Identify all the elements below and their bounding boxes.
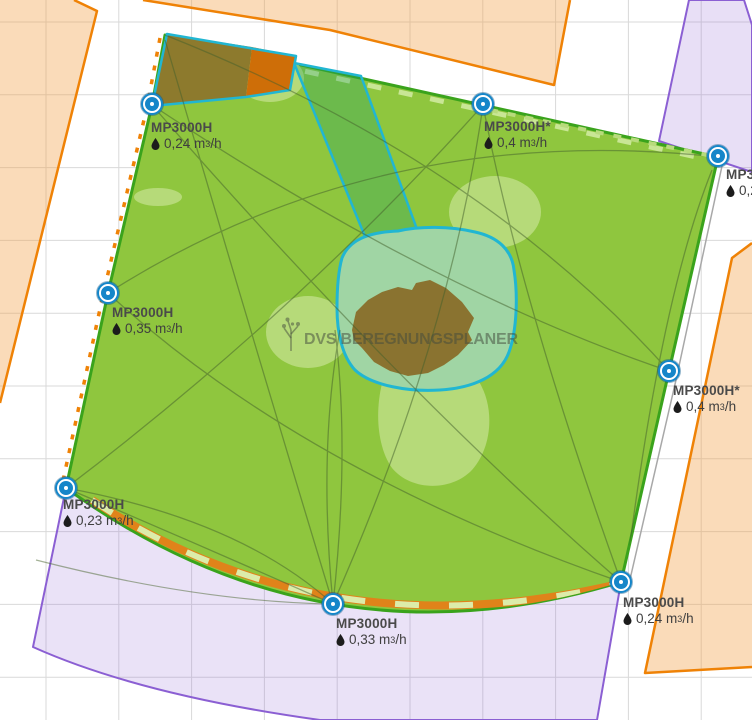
sprinkler-name: MP3000H* bbox=[484, 119, 551, 134]
building-left[interactable] bbox=[0, 0, 97, 403]
sprinkler-flow: 0,4 m3/h bbox=[673, 399, 740, 414]
sprinkler-label-1: MP3000H 0,24 m3/h bbox=[151, 120, 222, 151]
sprinkler-label-7: MP3000H 0,33 m3/h bbox=[336, 616, 407, 647]
droplet-icon bbox=[112, 323, 121, 335]
sprinkler-marker-3[interactable] bbox=[707, 145, 729, 167]
irrigation-planner-canvas: { "watermark": { "text": "DVS BEREGNUNGS… bbox=[0, 0, 752, 720]
sprinkler-flow: 0,24 m3/h bbox=[151, 136, 222, 151]
sprinkler-marker-4[interactable] bbox=[97, 282, 119, 304]
sprinkler-marker-1[interactable] bbox=[141, 93, 163, 115]
sprinkler-label-6: MP3000H 0,23 m3/h bbox=[63, 497, 134, 528]
sprinkler-flow: 0,24 m3/h bbox=[623, 611, 694, 626]
sprinkler-name: MP3000H bbox=[151, 120, 222, 135]
sprinkler-name: MP3000H bbox=[726, 167, 752, 182]
sprinkler-label-5: MP3000H* 0,4 m3/h bbox=[673, 383, 740, 414]
sprinkler-marker-5[interactable] bbox=[658, 360, 680, 382]
droplet-icon bbox=[484, 137, 493, 149]
droplet-icon bbox=[63, 515, 72, 527]
droplet-icon bbox=[336, 634, 345, 646]
sprinkler-flow: 0,4 m3/h bbox=[484, 135, 551, 150]
sprinkler-marker-6[interactable] bbox=[55, 477, 77, 499]
sprinkler-name: MP3000H bbox=[112, 305, 183, 320]
sprinkler-name: MP3000H* bbox=[673, 383, 740, 398]
droplet-icon bbox=[623, 613, 632, 625]
sprinkler-name: MP3000H bbox=[63, 497, 134, 512]
sprinkler-marker-7[interactable] bbox=[322, 593, 344, 615]
sprinkler-label-4: MP3000H 0,35 m3/h bbox=[112, 305, 183, 336]
sprinkler-flow: 0,35 m3/h bbox=[112, 321, 183, 336]
sprinkler-label-2: MP3000H* 0,4 m3/h bbox=[484, 119, 551, 150]
droplet-icon bbox=[673, 401, 682, 413]
droplet-icon bbox=[726, 185, 735, 197]
sprinkler-label-3: MP3000H 0,2 bbox=[726, 167, 752, 198]
sprinkler-flow: 0,23 m3/h bbox=[63, 513, 134, 528]
sprinkler-marker-2[interactable] bbox=[472, 93, 494, 115]
sprinkler-flow: 0,2 bbox=[726, 183, 752, 198]
droplet-icon bbox=[151, 138, 160, 150]
sprinkler-label-8: MP3000H 0,24 m3/h bbox=[623, 595, 694, 626]
sprinkler-name: MP3000H bbox=[336, 616, 407, 631]
sprinkler-marker-8[interactable] bbox=[610, 571, 632, 593]
sprinkler-flow: 0,33 m3/h bbox=[336, 632, 407, 647]
sprinkler-name: MP3000H bbox=[623, 595, 694, 610]
